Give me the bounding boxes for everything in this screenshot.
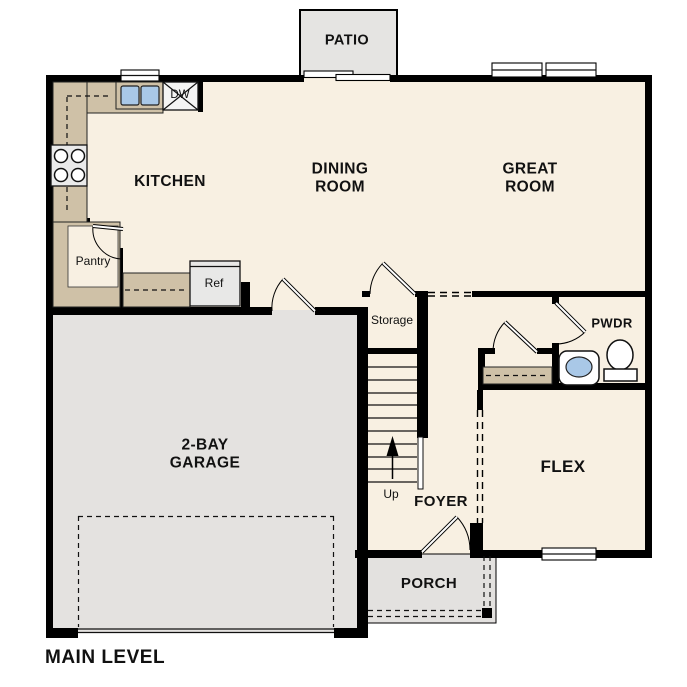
up-label: Up	[383, 487, 398, 501]
porch-label: PORCH	[401, 575, 457, 593]
burner	[55, 169, 68, 182]
sink-basin-right	[141, 86, 159, 105]
toilet-tank	[604, 369, 637, 381]
stair-railing	[418, 437, 423, 489]
great-room-label: GREAT ROOM	[502, 161, 557, 198]
refrigerator-label: Ref	[205, 276, 224, 290]
dishwasher-label: DW	[170, 89, 189, 103]
patio-label: PATIO	[325, 32, 369, 49]
pantry-label: Pantry	[76, 254, 111, 268]
porch-post	[482, 608, 492, 618]
burner	[72, 150, 85, 163]
sliding-door-panel-2	[336, 75, 390, 81]
floor-plan-drawing	[0, 0, 687, 687]
burner	[72, 169, 85, 182]
burner	[55, 150, 68, 163]
flex-label: FLEX	[540, 457, 585, 477]
foyer-label: FOYER	[414, 493, 468, 511]
powder-room-label: PWDR	[591, 315, 632, 330]
sink-bowl	[566, 357, 592, 377]
kitchen-label: KITCHEN	[134, 173, 206, 191]
storage-label: Storage	[371, 313, 413, 327]
dining-room-label: DINING ROOM	[312, 161, 369, 198]
garage-label: 2-BAY GARAGE	[170, 437, 240, 474]
plan-title: MAIN LEVEL	[45, 647, 165, 669]
sink-basin-left	[121, 86, 139, 105]
floor-plan: PATIO KITCHEN DINING ROOM GREAT ROOM Pan…	[0, 0, 687, 687]
toilet-bowl	[607, 340, 633, 370]
